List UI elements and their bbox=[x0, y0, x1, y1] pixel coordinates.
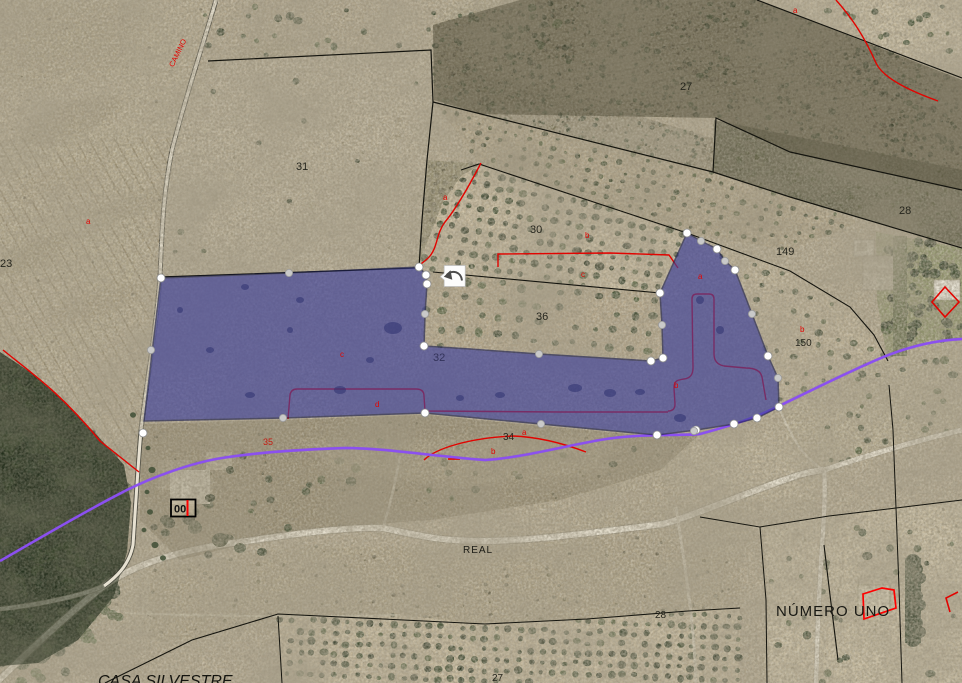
svg-text:b: b bbox=[491, 447, 496, 456]
svg-text:27: 27 bbox=[680, 81, 692, 93]
svg-text:a: a bbox=[793, 6, 798, 15]
svg-text:28: 28 bbox=[655, 610, 667, 621]
svg-text:30: 30 bbox=[530, 224, 542, 236]
svg-text:a: a bbox=[443, 193, 448, 202]
svg-text:d: d bbox=[375, 400, 379, 409]
svg-text:36: 36 bbox=[536, 311, 548, 323]
svg-text:b: b bbox=[585, 231, 590, 240]
svg-text:b: b bbox=[674, 381, 679, 390]
svg-text:b: b bbox=[800, 325, 805, 334]
svg-text:31: 31 bbox=[296, 161, 308, 173]
svg-text:34: 34 bbox=[503, 432, 515, 443]
svg-text:32: 32 bbox=[433, 352, 445, 364]
svg-text:CASA SILVESTRE: CASA SILVESTRE bbox=[98, 673, 233, 683]
svg-text:NÚMERO UNO: NÚMERO UNO bbox=[776, 603, 890, 620]
svg-text:a: a bbox=[86, 217, 91, 226]
svg-text:150: 150 bbox=[795, 338, 812, 349]
svg-text:a: a bbox=[522, 428, 527, 437]
svg-text:23: 23 bbox=[0, 258, 12, 270]
svg-text:28: 28 bbox=[899, 205, 911, 217]
svg-text:35: 35 bbox=[263, 437, 273, 447]
svg-text:a: a bbox=[698, 272, 703, 281]
svg-text:27: 27 bbox=[492, 673, 504, 683]
svg-text:c: c bbox=[340, 350, 344, 359]
svg-text:00: 00 bbox=[174, 504, 186, 516]
svg-text:149: 149 bbox=[776, 246, 794, 258]
svg-text:REAL: REAL bbox=[463, 545, 493, 556]
svg-text:c: c bbox=[581, 270, 585, 279]
